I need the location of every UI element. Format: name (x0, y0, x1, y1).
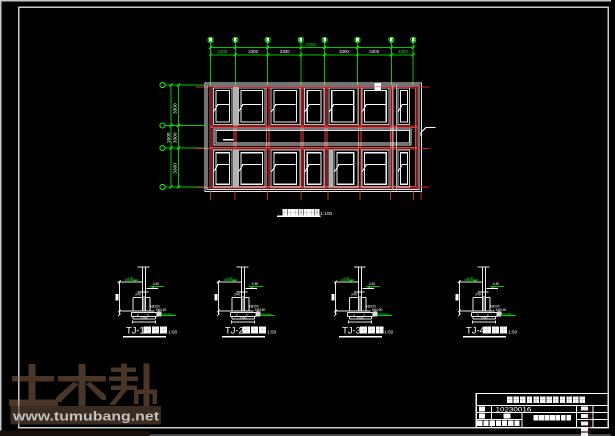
svg-text:1200: 1200 (140, 317, 147, 321)
svg-text:TJ-1: TJ-1 (126, 324, 145, 335)
svg-text:8@200: 8@200 (260, 312, 270, 316)
svg-text:1200: 1200 (480, 317, 487, 321)
svg-text:240: 240 (475, 293, 481, 297)
svg-text:3300: 3300 (173, 163, 179, 174)
svg-text:1:100: 1:100 (320, 211, 332, 217)
svg-text:240: 240 (351, 293, 357, 297)
svg-text:1:50: 1:50 (508, 330, 517, 335)
svg-text:10230016: 10230016 (496, 406, 532, 413)
svg-text:TJ-2: TJ-2 (225, 324, 244, 335)
svg-text:TJ-3: TJ-3 (342, 324, 361, 335)
svg-text:-0.80: -0.80 (492, 282, 499, 286)
svg-text:8@200: 8@200 (161, 312, 171, 316)
svg-text:-0.06: -0.06 (343, 276, 350, 280)
svg-text:1200: 1200 (239, 317, 246, 321)
svg-text:1500: 1500 (166, 132, 172, 143)
svg-text:3300: 3300 (248, 49, 258, 54)
svg-text:240: 240 (234, 293, 240, 297)
svg-text:www.tumubang.net: www.tumubang.net (12, 408, 160, 423)
svg-text:3300: 3300 (339, 49, 349, 54)
svg-text:8@200: 8@200 (377, 312, 387, 316)
svg-text:-0.06: -0.06 (226, 276, 233, 280)
svg-text:3300: 3300 (398, 49, 408, 54)
svg-text:240: 240 (135, 293, 141, 297)
svg-text:1200: 1200 (356, 317, 363, 321)
svg-text:3300: 3300 (369, 49, 379, 54)
svg-text:1:50: 1:50 (384, 330, 393, 335)
svg-text:-0.80: -0.80 (368, 282, 375, 286)
svg-text:-0.80: -0.80 (251, 282, 258, 286)
svg-text:3300: 3300 (173, 132, 179, 143)
svg-text:3300: 3300 (173, 103, 179, 114)
svg-text:1:50: 1:50 (168, 330, 177, 335)
svg-text:8@200: 8@200 (501, 312, 511, 316)
svg-text:-0.80: -0.80 (152, 282, 159, 286)
svg-text:-0.06: -0.06 (127, 276, 134, 280)
svg-text:1:50: 1:50 (267, 330, 276, 335)
svg-text:-0.06: -0.06 (467, 276, 474, 280)
svg-text:TJ-4: TJ-4 (466, 324, 485, 335)
svg-text:3300: 3300 (280, 49, 290, 54)
svg-text:3300: 3300 (218, 49, 228, 54)
svg-text:2700: 2700 (306, 42, 316, 47)
